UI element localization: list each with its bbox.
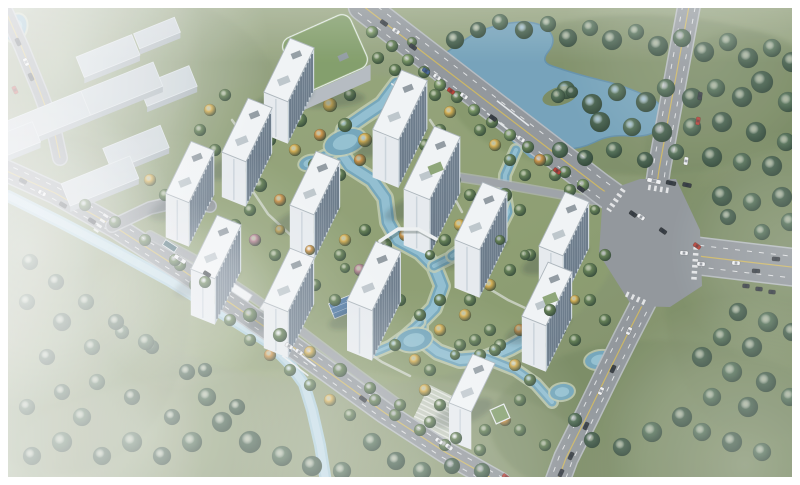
scene-content xyxy=(0,0,800,485)
residential-masterplan-aerial-rendering xyxy=(0,0,800,485)
atmosphere-tint xyxy=(8,8,792,477)
mist-overlays xyxy=(0,0,800,485)
aerial-rendering-page xyxy=(0,0,800,485)
